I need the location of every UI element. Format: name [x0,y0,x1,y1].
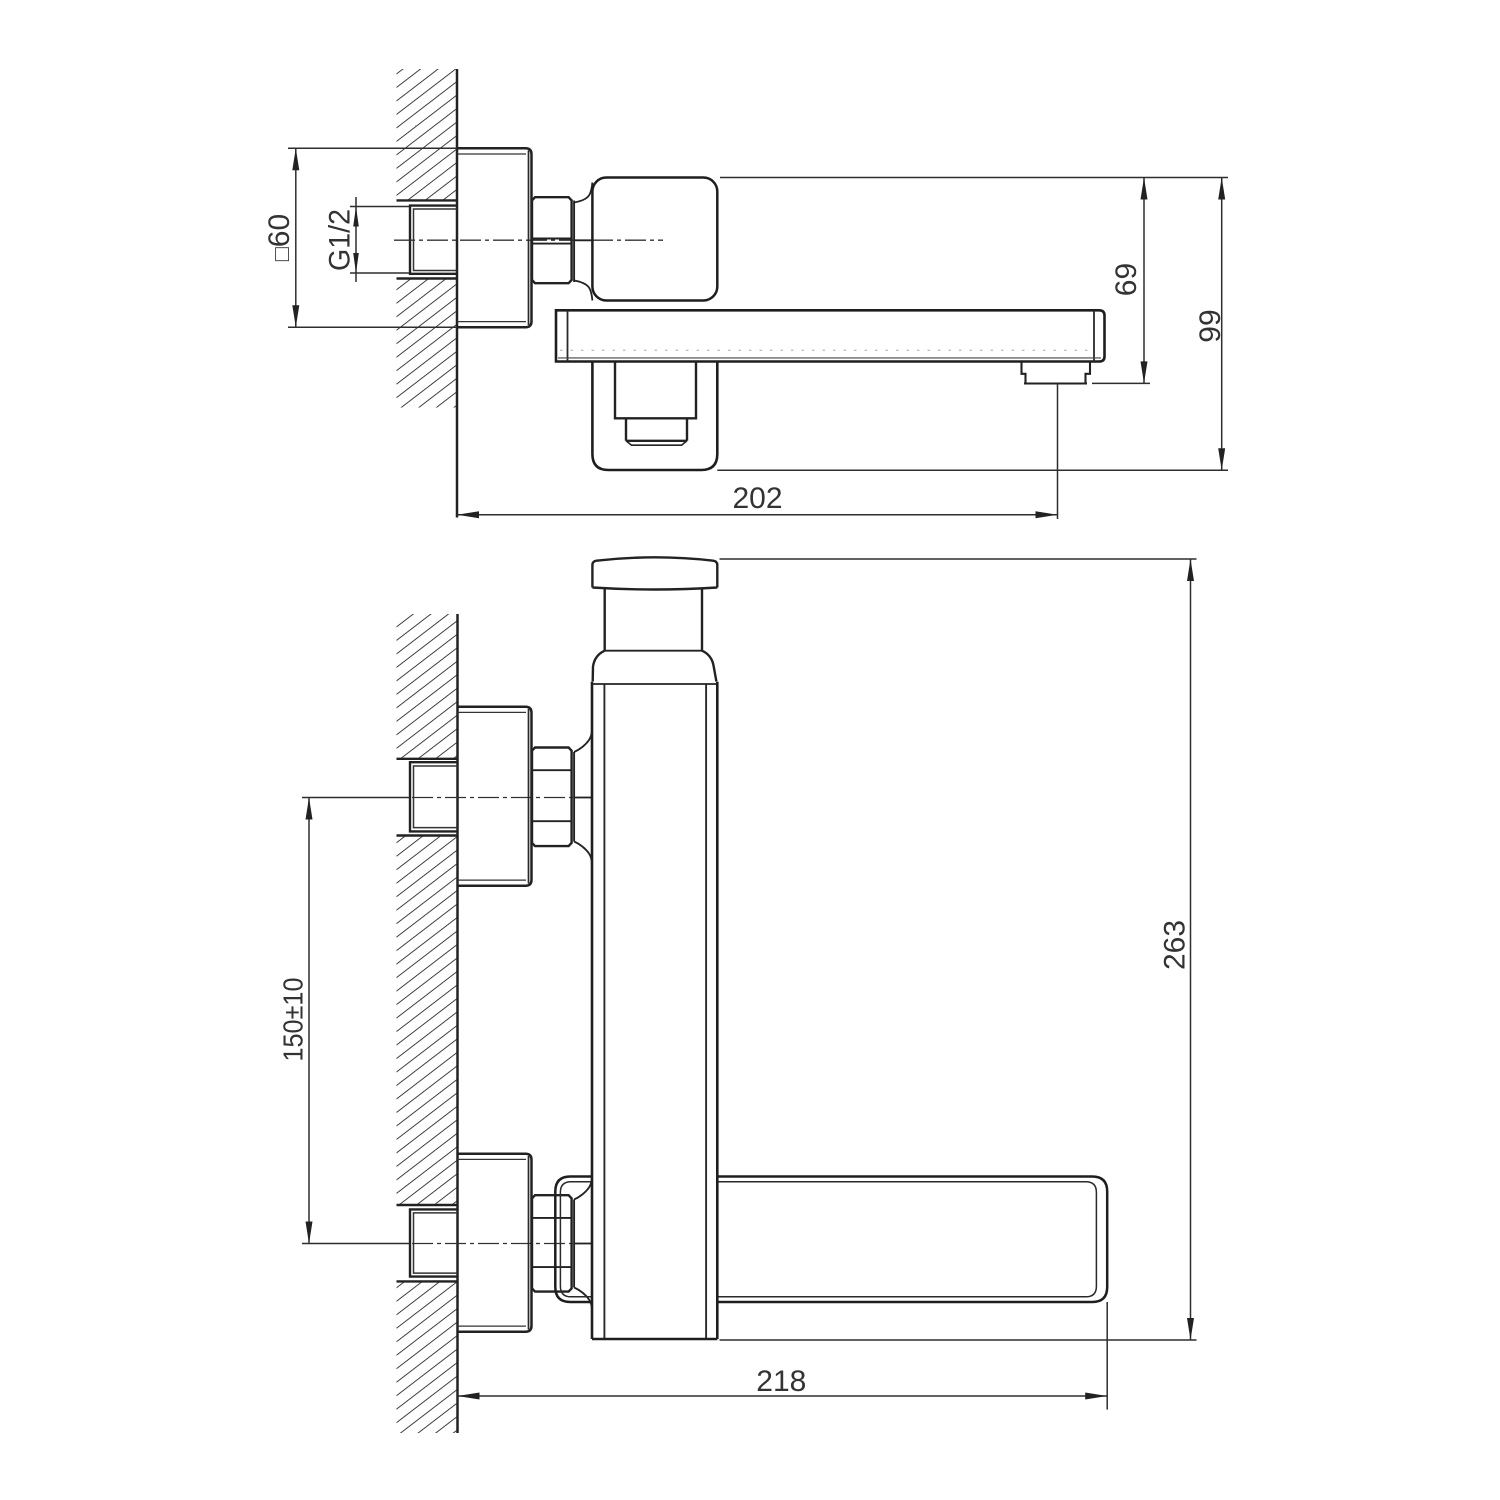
svg-text:69: 69 [1110,263,1143,296]
svg-text:202: 202 [732,482,782,515]
svg-text:150±10: 150±10 [278,978,309,1062]
svg-text:218: 218 [756,1365,806,1398]
svg-text:99: 99 [1194,309,1227,342]
svg-text:G1/2: G1/2 [324,209,357,271]
svg-text:□60: □60 [263,214,296,261]
svg-text:263: 263 [1158,920,1191,970]
